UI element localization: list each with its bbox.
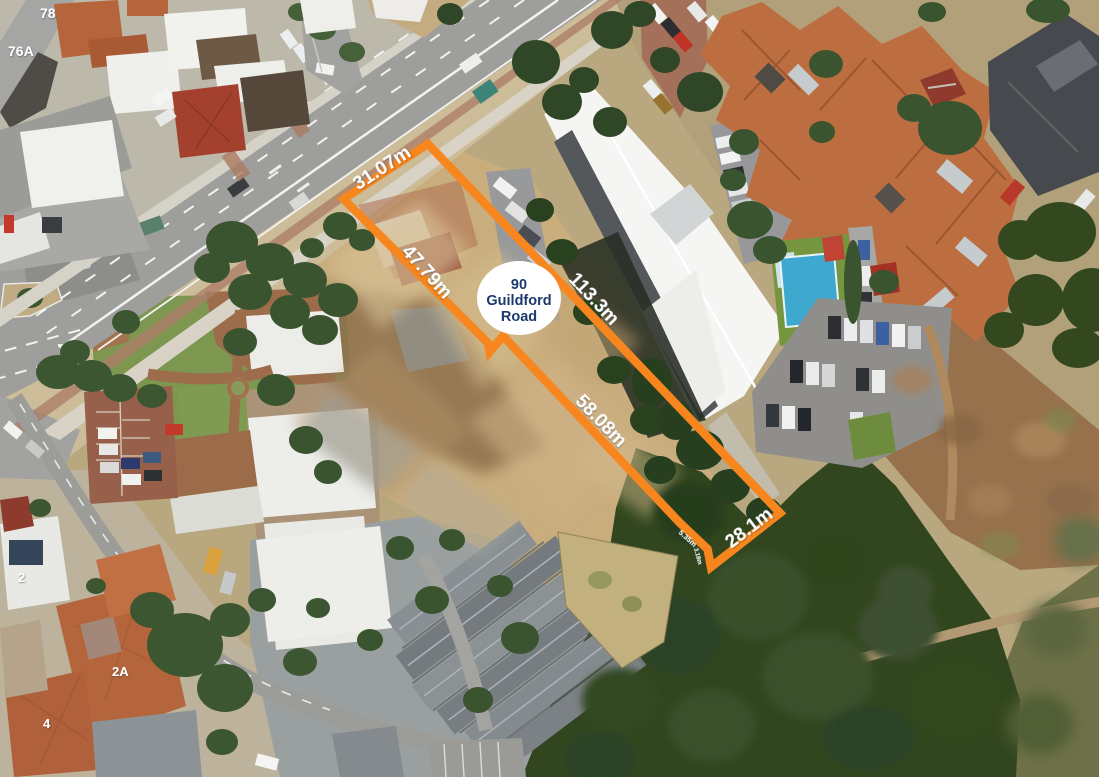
svg-text:4: 4 <box>43 716 51 731</box>
svg-text:90: 90 <box>511 277 527 293</box>
svg-text:2A: 2A <box>112 664 129 679</box>
svg-text:76A: 76A <box>8 43 34 59</box>
svg-text:78: 78 <box>40 5 56 21</box>
svg-text:Guildford: Guildford <box>486 293 551 309</box>
svg-text:2: 2 <box>18 570 25 585</box>
svg-text:Road: Road <box>501 309 537 325</box>
